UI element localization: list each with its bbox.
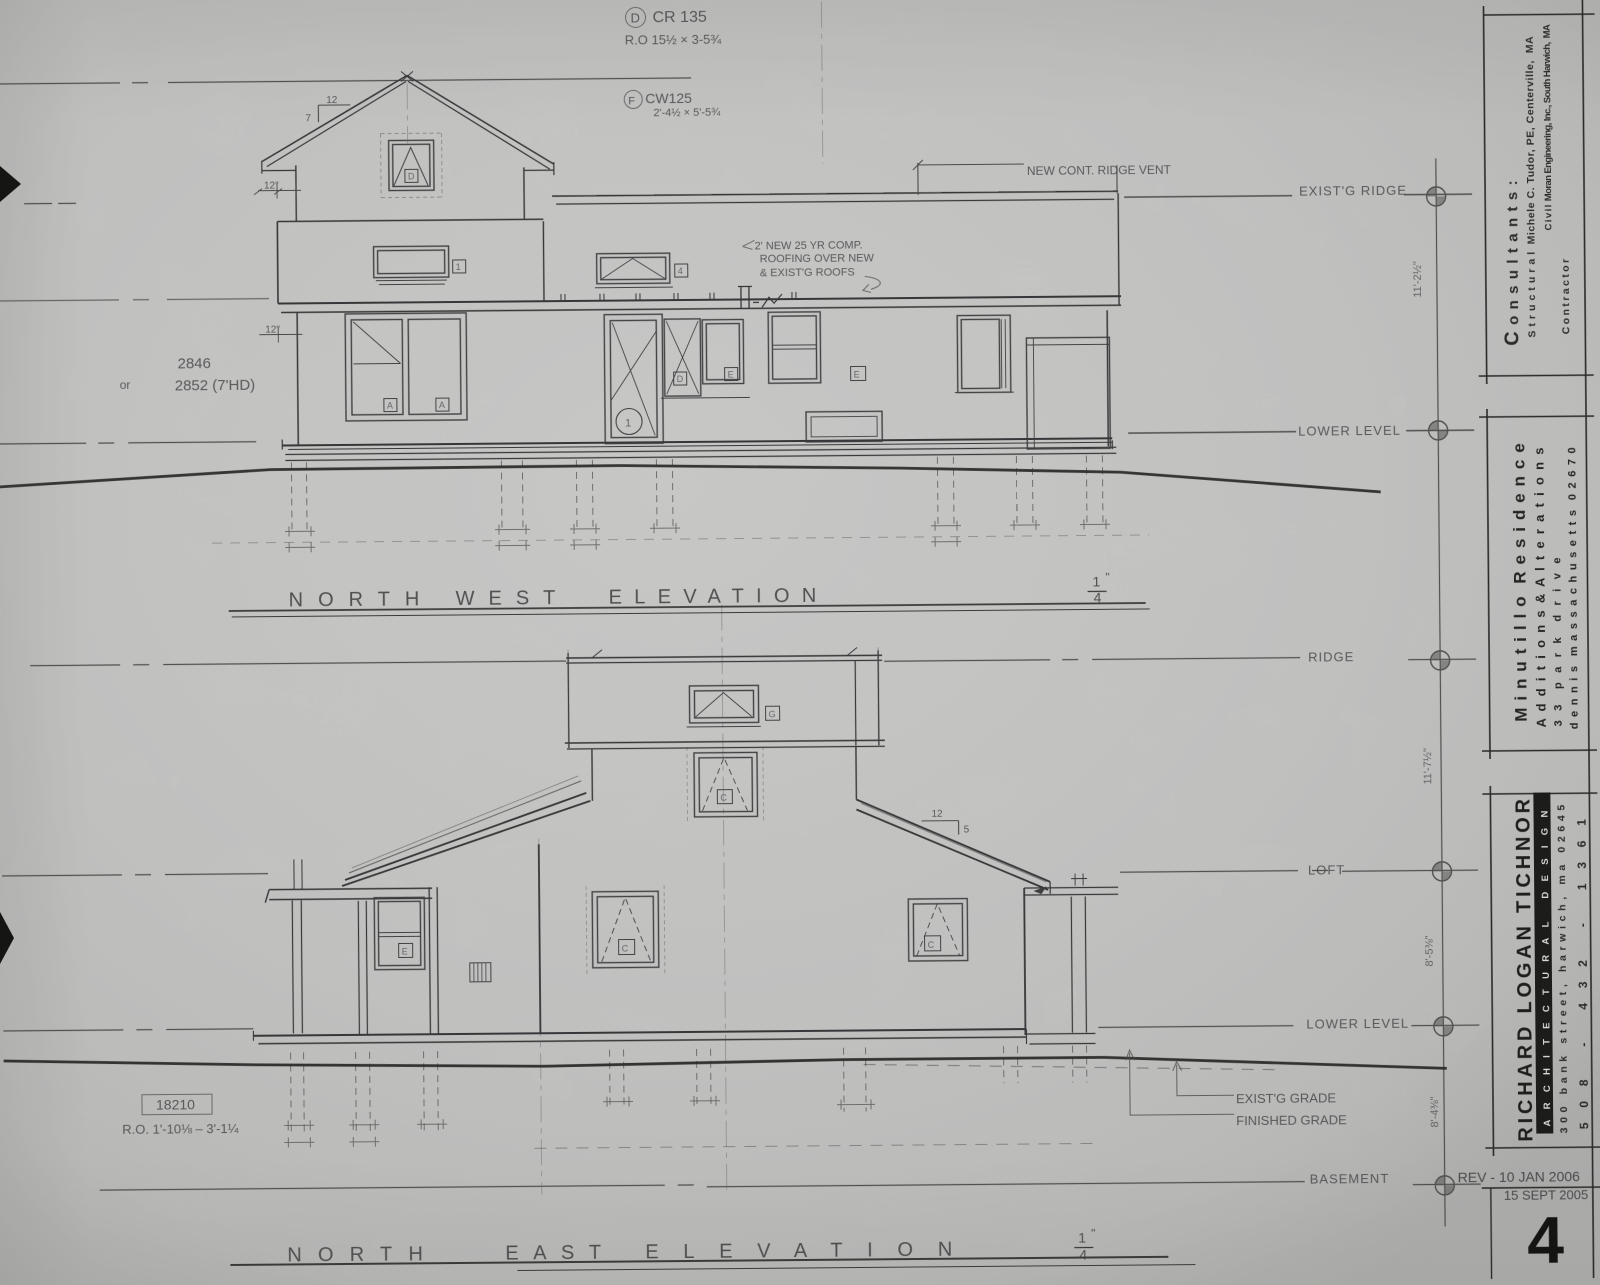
svg-text:LOWER LEVEL: LOWER LEVEL [1306, 1016, 1409, 1032]
svg-text:R.O. 1'-10⅛ – 3'-1¼: R.O. 1'-10⅛ – 3'-1¼ [122, 1121, 239, 1137]
svg-text:NEW CONT. RIDGE VENT: NEW CONT. RIDGE VENT [1027, 163, 1172, 178]
svg-text:12: 12 [931, 809, 943, 820]
svg-text:1: 1 [1092, 573, 1100, 589]
svg-text:EXIST'G GRADE: EXIST'G GRADE [1236, 1090, 1336, 1106]
svg-text:8'-5⅜": 8'-5⅜" [1424, 935, 1436, 966]
svg-text:12": 12" [264, 181, 279, 192]
svg-text:2' NEW 25 YR COMP.: 2' NEW 25 YR COMP. [754, 239, 862, 252]
svg-text:A: A [439, 400, 445, 410]
svg-text:7: 7 [305, 113, 311, 124]
svg-text:2'-4½ × 5'-5¾: 2'-4½ × 5'-5¾ [653, 107, 721, 120]
svg-text:12: 12 [326, 95, 338, 106]
svg-text:C: C [720, 793, 727, 803]
svg-text:E: E [854, 369, 860, 379]
svg-text:E: E [728, 370, 734, 380]
svg-text:& EXIST'G ROOFS: & EXIST'G ROOFS [760, 267, 855, 280]
svg-text:4: 4 [1527, 1202, 1565, 1276]
svg-text:12": 12" [265, 325, 280, 336]
svg-text:C: C [622, 944, 629, 954]
svg-text:LOFT: LOFT [1308, 862, 1345, 877]
svg-text:D: D [630, 10, 640, 25]
svg-text:RIDGE: RIDGE [1308, 649, 1354, 664]
svg-text:d e n n i s m a s s a c h u s: d e n n i s m a s s a c h u s e t t s 0 … [1566, 446, 1580, 729]
svg-text:ELEVATION: ELEVATION [609, 585, 829, 609]
svg-text:R.O 15½ × 3-5¾: R.O 15½ × 3-5¾ [625, 32, 722, 48]
svg-text:1: 1 [625, 417, 631, 429]
svg-text:or: or [120, 378, 131, 392]
svg-text:C i v i l Moran Engineering,: C i v i l Moran Engineering, Inc., South… [1542, 24, 1555, 230]
svg-text:FINISHED GRADE: FINISHED GRADE [1236, 1112, 1347, 1128]
svg-text:508 - 432 - 1361: 508 - 432 - 1361 [1574, 804, 1591, 1129]
svg-text:1: 1 [456, 262, 461, 272]
svg-text:RICHARD LOGAN TICHNOR: RICHARD LOGAN TICHNOR [1512, 795, 1537, 1142]
svg-text:8'-4⅜": 8'-4⅜" [1429, 1096, 1441, 1127]
svg-text:C: C [928, 940, 935, 950]
svg-text:G: G [769, 709, 776, 719]
svg-text:11'-7½": 11'-7½" [1422, 748, 1434, 785]
svg-text:3 3 p a r k d r i v e: 3 3 p a r k d r i v e [1551, 554, 1565, 726]
svg-text:CR 135: CR 135 [652, 9, 706, 26]
svg-text:NORTH: NORTH [289, 588, 435, 611]
svg-text:ROOFING OVER NEW: ROOFING OVER NEW [760, 252, 875, 265]
svg-text:BASEMENT: BASEMENT [1310, 1171, 1390, 1187]
svg-text:1: 1 [1078, 1230, 1086, 1246]
svg-text:E: E [402, 946, 408, 956]
svg-text:A d d i t i o n s & A l t e r: A d d i t i o n s & A l t e r a t i o n … [1531, 446, 1548, 728]
svg-text:4: 4 [1079, 1247, 1087, 1263]
svg-text:F: F [628, 95, 635, 107]
svg-text:CW125: CW125 [645, 90, 692, 106]
svg-text:11'-2½": 11'-2½" [1412, 261, 1424, 298]
svg-text:": " [1105, 570, 1109, 584]
svg-text:M i n u t i l l o R e s i d e: M i n u t i l l o R e s i d e n c e [1509, 442, 1530, 722]
svg-text:D: D [408, 171, 415, 181]
svg-text:2852 (7'HD): 2852 (7'HD) [175, 377, 256, 395]
svg-text:C o n t r a c t o r: C o n t r a c t o r [1560, 259, 1573, 334]
svg-text:5: 5 [964, 825, 970, 836]
svg-text:WEST: WEST [456, 587, 570, 610]
svg-text:18210: 18210 [156, 1096, 195, 1112]
svg-text:15 SEPT 2005: 15 SEPT 2005 [1504, 1187, 1588, 1203]
svg-text:D: D [677, 374, 684, 384]
svg-text:": " [1091, 1226, 1095, 1240]
svg-text:A: A [387, 401, 393, 411]
svg-text:2846: 2846 [177, 355, 211, 372]
svg-text:4: 4 [678, 266, 683, 276]
svg-text:LOWER LEVEL: LOWER LEVEL [1298, 423, 1401, 439]
svg-text:REV - 10 JAN 2006: REV - 10 JAN 2006 [1458, 1168, 1581, 1185]
svg-text:EXIST'G RIDGE: EXIST'G RIDGE [1299, 183, 1407, 199]
